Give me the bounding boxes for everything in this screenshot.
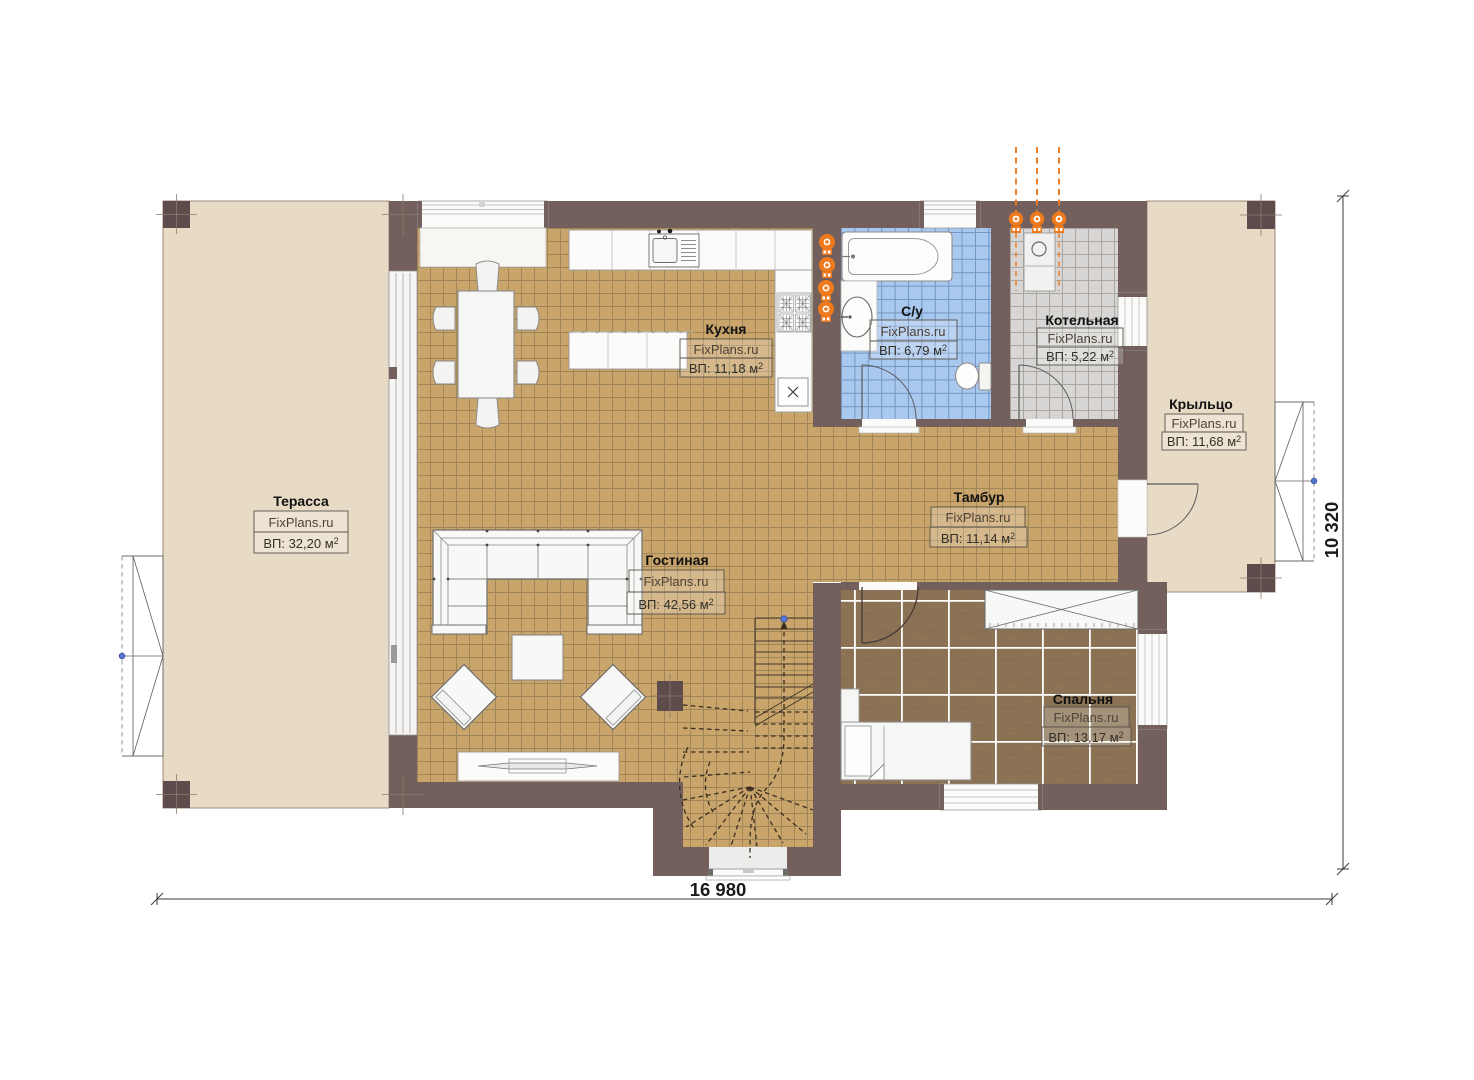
svg-text:ВП: 11,14 м2: ВП: 11,14 м2 (941, 531, 1015, 546)
svg-text:С/у: С/у (901, 303, 923, 319)
svg-text:ВП: 13,17 м2: ВП: 13,17 м2 (1048, 730, 1123, 745)
svg-text:ВП: 5,22 м2: ВП: 5,22 м2 (1046, 349, 1114, 364)
svg-text:FixPlans.ru: FixPlans.ru (1047, 331, 1112, 346)
svg-text:Гостиная: Гостиная (645, 552, 708, 568)
svg-text:Тамбур: Тамбур (954, 489, 1005, 505)
svg-text:ВП: 11,68 м2: ВП: 11,68 м2 (1167, 434, 1241, 449)
svg-text:Кухня: Кухня (706, 321, 747, 337)
svg-text:Крыльцо: Крыльцо (1169, 396, 1233, 412)
svg-text:ВП: 32,20 м2: ВП: 32,20 м2 (263, 536, 338, 551)
svg-text:FixPlans.ru: FixPlans.ru (693, 342, 758, 357)
svg-text:FixPlans.ru: FixPlans.ru (1053, 710, 1118, 725)
svg-text:Спальня: Спальня (1053, 691, 1113, 707)
svg-text:ВП: 11,18 м2: ВП: 11,18 м2 (689, 361, 763, 376)
svg-text:FixPlans.ru: FixPlans.ru (880, 324, 945, 339)
svg-text:Котельная: Котельная (1045, 312, 1118, 328)
svg-text:Терасса: Терасса (273, 493, 329, 509)
svg-text:ВП: 6,79 м2: ВП: 6,79 м2 (879, 343, 947, 358)
svg-text:10 320: 10 320 (1321, 502, 1342, 559)
svg-text:FixPlans.ru: FixPlans.ru (945, 510, 1010, 525)
svg-text:16 980: 16 980 (690, 879, 747, 900)
svg-text:FixPlans.ru: FixPlans.ru (1171, 416, 1236, 431)
svg-text:FixPlans.ru: FixPlans.ru (268, 515, 333, 530)
svg-text:FixPlans.ru: FixPlans.ru (643, 574, 708, 589)
svg-text:ВП: 42,56 м2: ВП: 42,56 м2 (638, 597, 713, 612)
